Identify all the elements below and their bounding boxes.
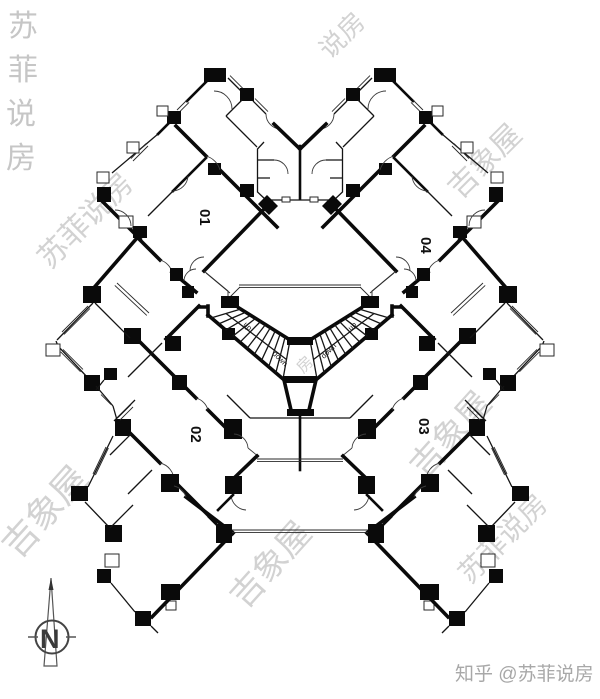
svg-text:房: 房: [6, 142, 36, 175]
svg-text:菲: 菲: [8, 54, 38, 87]
svg-text:04: 04: [417, 237, 434, 254]
svg-text:说房: 说房: [313, 6, 371, 64]
svg-text:N: N: [40, 624, 60, 654]
svg-text:03: 03: [415, 418, 432, 435]
svg-text:吉象屋: 吉象屋: [223, 514, 319, 615]
svg-text:01: 01: [196, 209, 213, 226]
svg-text:02: 02: [187, 426, 204, 443]
svg-text:知乎 @苏菲说房: 知乎 @苏菲说房: [455, 663, 594, 685]
svg-text:吉象屋: 吉象屋: [442, 118, 529, 205]
svg-text:苏: 苏: [8, 10, 38, 43]
svg-text:吉象屋: 吉象屋: [0, 458, 96, 566]
svg-text:说: 说: [6, 98, 36, 131]
svg-text:down: down: [271, 349, 290, 368]
